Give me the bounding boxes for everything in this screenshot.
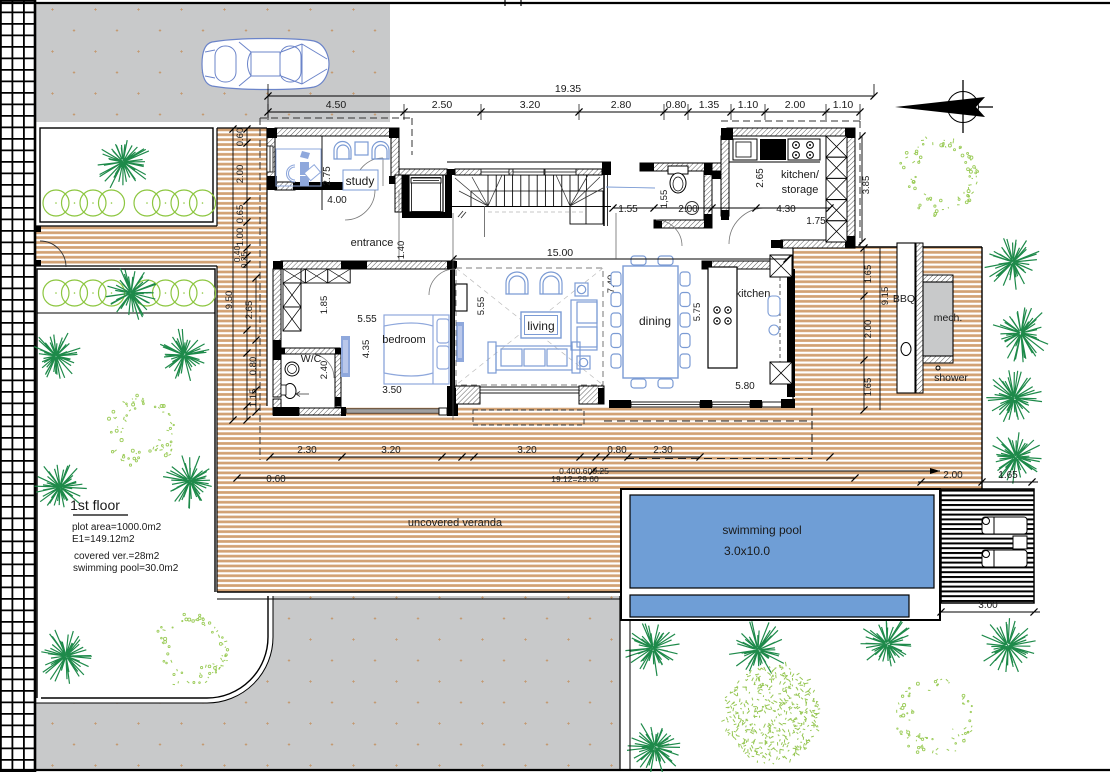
- svg-text:3.85: 3.85: [861, 176, 872, 195]
- svg-text:0.60: 0.60: [235, 128, 246, 147]
- svg-text:shower: shower: [934, 372, 968, 384]
- svg-text:bedroom: bedroom: [382, 334, 425, 346]
- svg-text:0.25: 0.25: [239, 251, 249, 268]
- svg-text:2.65: 2.65: [244, 301, 255, 320]
- svg-text:1.85: 1.85: [319, 296, 330, 315]
- svg-text:study: study: [346, 174, 375, 188]
- svg-text:3.50: 3.50: [382, 385, 402, 396]
- svg-text:1st floor: 1st floor: [70, 497, 120, 513]
- svg-text:1.65: 1.65: [863, 265, 874, 284]
- svg-text:3.0x10.0: 3.0x10.0: [724, 544, 770, 558]
- svg-text:2.00: 2.00: [863, 320, 874, 339]
- svg-text:4.00: 4.00: [327, 195, 347, 206]
- svg-text:swimming pool: swimming pool: [722, 523, 801, 537]
- svg-text:2.50: 2.50: [432, 99, 453, 111]
- svg-text:2.75: 2.75: [322, 166, 333, 186]
- svg-text:1,55: 1,55: [659, 190, 670, 209]
- svg-text:15.00: 15.00: [547, 247, 573, 259]
- svg-text:4.30: 4.30: [776, 204, 796, 215]
- svg-text:2.80: 2.80: [611, 99, 632, 111]
- svg-text:1.75: 1.75: [806, 216, 826, 227]
- svg-text:1.10: 1.10: [738, 99, 759, 111]
- svg-text:E1=149.12m2: E1=149.12m2: [72, 534, 135, 545]
- svg-text:swimming pool=30.0m2: swimming pool=30.0m2: [73, 563, 179, 574]
- svg-text:uncovered veranda: uncovered veranda: [408, 517, 503, 529]
- svg-text:2.00: 2.00: [943, 470, 963, 481]
- svg-text:1.65: 1.65: [998, 470, 1018, 481]
- svg-text:2.40: 2.40: [319, 361, 330, 380]
- svg-text:4.50: 4.50: [326, 99, 347, 111]
- svg-text:5.55: 5.55: [476, 297, 487, 316]
- svg-text:kitchen: kitchen: [736, 288, 771, 300]
- svg-text:1.35: 1.35: [699, 99, 720, 111]
- svg-text:3.20: 3.20: [520, 99, 541, 111]
- svg-text:2.00: 2.00: [678, 204, 698, 215]
- svg-text:5.80: 5.80: [735, 381, 755, 392]
- svg-text:5.75: 5.75: [692, 303, 703, 322]
- svg-text:1.15: 1.15: [248, 389, 259, 408]
- svg-text:0.80: 0.80: [607, 445, 627, 456]
- svg-text:19.35: 19.35: [555, 83, 581, 95]
- svg-text:2.30: 2.30: [653, 445, 673, 456]
- svg-text:living: living: [527, 319, 554, 333]
- svg-text:3.00: 3.00: [978, 600, 998, 611]
- svg-text:2.00: 2.00: [235, 165, 246, 184]
- svg-text:plot area=1000.0m2: plot area=1000.0m2: [72, 522, 162, 533]
- svg-text:storage: storage: [782, 184, 819, 196]
- svg-text:0.65: 0.65: [235, 205, 246, 224]
- svg-text:entrance: entrance: [351, 237, 394, 249]
- svg-text:5.55: 5.55: [357, 314, 377, 325]
- svg-text:1.10: 1.10: [833, 99, 854, 111]
- svg-text:dining: dining: [639, 314, 671, 328]
- svg-text:kitchen/: kitchen/: [781, 169, 820, 181]
- svg-text:2.65: 2.65: [755, 168, 766, 188]
- svg-text:4.35: 4.35: [361, 340, 372, 359]
- svg-text:1.40: 1.40: [396, 241, 407, 260]
- svg-text:mech.: mech.: [934, 312, 963, 324]
- svg-text:3.20: 3.20: [381, 445, 401, 456]
- svg-text:1.55: 1.55: [618, 204, 638, 215]
- svg-text:2.30: 2.30: [297, 445, 317, 456]
- svg-text:covered ver.=28m2: covered ver.=28m2: [74, 551, 160, 562]
- svg-text:0.80: 0.80: [666, 99, 687, 111]
- svg-text:0.60: 0.60: [266, 474, 286, 485]
- svg-text:0.80: 0.80: [248, 357, 259, 376]
- svg-text:1.65: 1.65: [863, 378, 874, 397]
- svg-text:BBQ: BBQ: [893, 293, 915, 305]
- svg-text:2.00: 2.00: [785, 99, 806, 111]
- svg-text:9.15: 9.15: [880, 287, 891, 306]
- svg-text:1.00: 1.00: [235, 228, 246, 247]
- svg-text:3.20: 3.20: [517, 445, 537, 456]
